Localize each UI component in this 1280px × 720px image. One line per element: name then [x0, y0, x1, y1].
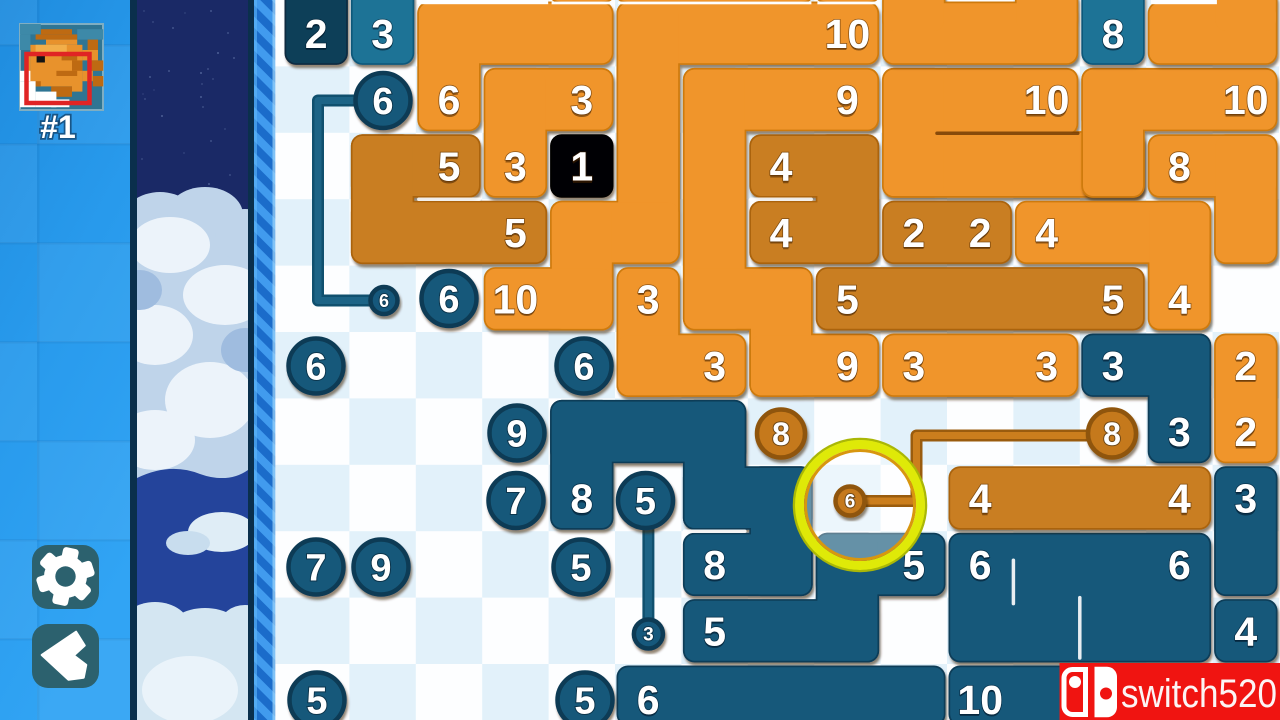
svg-text:5: 5	[836, 276, 859, 322]
svg-text:9: 9	[370, 547, 391, 589]
svg-text:5: 5	[703, 608, 726, 654]
svg-text:8: 8	[703, 542, 726, 588]
svg-text:2: 2	[1234, 343, 1257, 389]
svg-text:6: 6	[637, 677, 660, 720]
svg-text:10: 10	[493, 276, 539, 322]
svg-text:3: 3	[1234, 476, 1257, 522]
svg-text:3: 3	[643, 625, 654, 646]
svg-text:9: 9	[836, 77, 859, 123]
svg-text:6: 6	[438, 77, 461, 123]
svg-text:4: 4	[1234, 608, 1257, 654]
svg-text:#1: #1	[40, 109, 76, 145]
svg-text:3: 3	[703, 343, 726, 389]
svg-text:switch520: switch520	[1121, 672, 1277, 716]
svg-text:3: 3	[504, 144, 527, 190]
svg-text:3: 3	[1035, 343, 1058, 389]
svg-text:4: 4	[1168, 276, 1191, 322]
svg-text:4: 4	[1168, 476, 1191, 522]
svg-text:8: 8	[570, 476, 593, 522]
svg-text:8: 8	[1103, 416, 1121, 452]
svg-text:6: 6	[379, 291, 389, 311]
svg-text:6: 6	[969, 542, 992, 588]
svg-text:2: 2	[305, 11, 328, 57]
svg-text:5: 5	[306, 680, 327, 720]
svg-text:5: 5	[1102, 276, 1125, 322]
svg-text:7: 7	[305, 547, 326, 589]
svg-text:5: 5	[635, 481, 656, 523]
svg-text:6: 6	[573, 346, 594, 388]
svg-text:4: 4	[770, 210, 793, 256]
svg-text:3: 3	[902, 343, 925, 389]
svg-text:9: 9	[506, 413, 527, 455]
svg-text:4: 4	[1035, 210, 1058, 256]
svg-text:10: 10	[1024, 77, 1070, 123]
svg-text:5: 5	[504, 210, 527, 256]
svg-text:1: 1	[570, 144, 593, 190]
svg-text:3: 3	[570, 77, 593, 123]
svg-text:5: 5	[438, 144, 461, 190]
svg-text:10: 10	[1223, 77, 1269, 123]
svg-text:6: 6	[305, 346, 326, 388]
svg-text:4: 4	[770, 144, 793, 190]
svg-text:10: 10	[825, 11, 871, 57]
svg-text:3: 3	[1168, 409, 1191, 455]
svg-text:5: 5	[570, 547, 591, 589]
svg-text:2: 2	[1234, 409, 1257, 455]
svg-text:2: 2	[969, 210, 992, 256]
svg-text:3: 3	[1102, 343, 1125, 389]
svg-text:2: 2	[902, 210, 925, 256]
svg-text:10: 10	[957, 677, 1003, 720]
svg-text:8: 8	[772, 416, 790, 452]
svg-text:4: 4	[969, 476, 992, 522]
svg-text:6: 6	[372, 81, 393, 123]
svg-text:8: 8	[1168, 144, 1191, 190]
svg-text:9: 9	[836, 343, 859, 389]
svg-text:3: 3	[637, 276, 660, 322]
svg-text:6: 6	[438, 279, 459, 321]
svg-text:7: 7	[505, 481, 526, 523]
svg-text:3: 3	[371, 11, 394, 57]
svg-text:5: 5	[574, 680, 595, 720]
svg-text:6: 6	[1168, 542, 1191, 588]
svg-text:6: 6	[845, 492, 856, 513]
svg-text:8: 8	[1102, 11, 1125, 57]
